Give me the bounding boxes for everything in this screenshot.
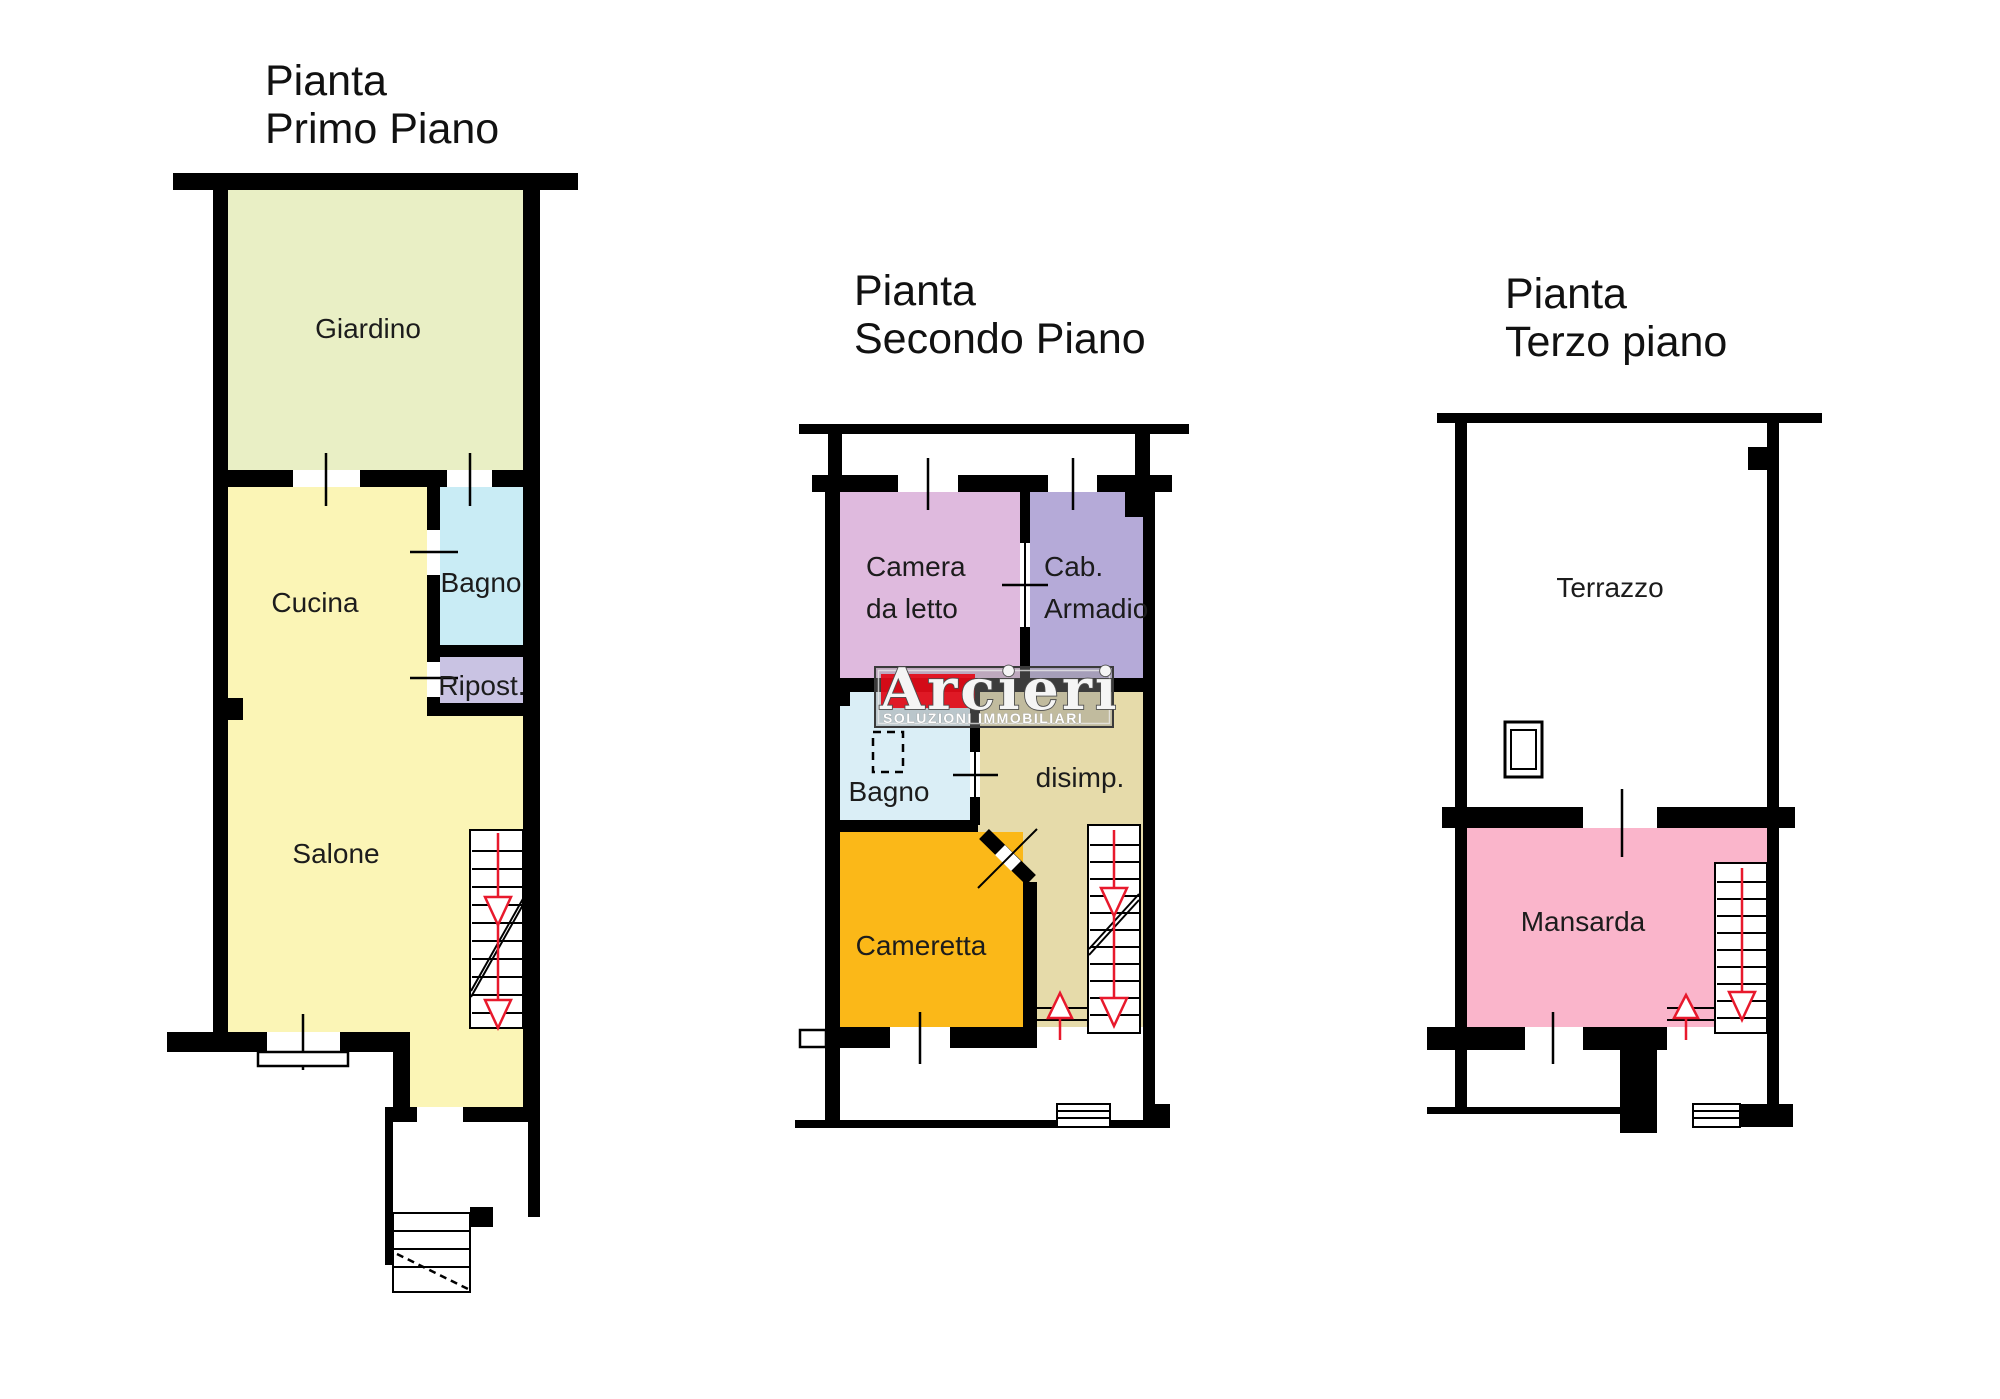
door-sill: [258, 1052, 348, 1066]
plan3-title-line2: Terzo piano: [1505, 318, 1727, 366]
label-cameretta: Cameretta: [856, 930, 987, 961]
plan3-title-line1: Pianta: [1505, 270, 1627, 318]
plan2-title-line2: Secondo Piano: [854, 315, 1146, 363]
floorplan-sheet: Pianta Primo Piano: [0, 0, 2000, 1399]
plan-primo-piano: Pianta Primo Piano: [167, 57, 578, 1292]
label-bagno-p1: Bagno: [441, 567, 522, 598]
label-ripostiglio: Ripost.: [438, 670, 525, 701]
plan2-title-line1: Pianta: [854, 267, 976, 315]
label-camera-line1: Camera: [866, 551, 966, 582]
room-bagno-p1: [440, 487, 523, 645]
label-giardino: Giardino: [315, 313, 421, 344]
plan1-title-line2: Primo Piano: [265, 105, 499, 153]
plan1-title-line1: Pianta: [265, 57, 387, 105]
label-mansarda: Mansarda: [1521, 906, 1646, 937]
watermark-tagline: SOLUZIONI IMMOBILIARI: [883, 710, 1083, 726]
plan1-door-extension-exterior: [417, 1107, 463, 1122]
label-cucina: Cucina: [271, 587, 359, 618]
plan-terzo-piano: Pianta Terzo piano: [1427, 270, 1822, 1133]
wall-end-cap: [800, 1030, 826, 1047]
label-terrazzo: Terrazzo: [1556, 572, 1663, 603]
plan1-staircase: [470, 830, 524, 1028]
label-cab-line2: Armadio: [1044, 593, 1148, 624]
label-disimpegno: disimp.: [1036, 762, 1125, 793]
plan2-exterior-steps: [1057, 1104, 1110, 1127]
room-camera-da-letto: [840, 492, 1020, 678]
label-bagno-p2: Bagno: [849, 776, 930, 807]
label-salone: Salone: [292, 838, 379, 869]
agency-watermark: Arcieri SOLUZIONI IMMOBILIARI: [875, 656, 1120, 727]
plan1-entry-steps: [393, 1213, 470, 1292]
plan3-exterior-steps: [1693, 1104, 1740, 1127]
label-camera-line2: da letto: [866, 593, 958, 624]
room-salone-extension: [410, 1032, 523, 1107]
label-cab-line1: Cab.: [1044, 551, 1103, 582]
skylight: [1505, 722, 1542, 777]
